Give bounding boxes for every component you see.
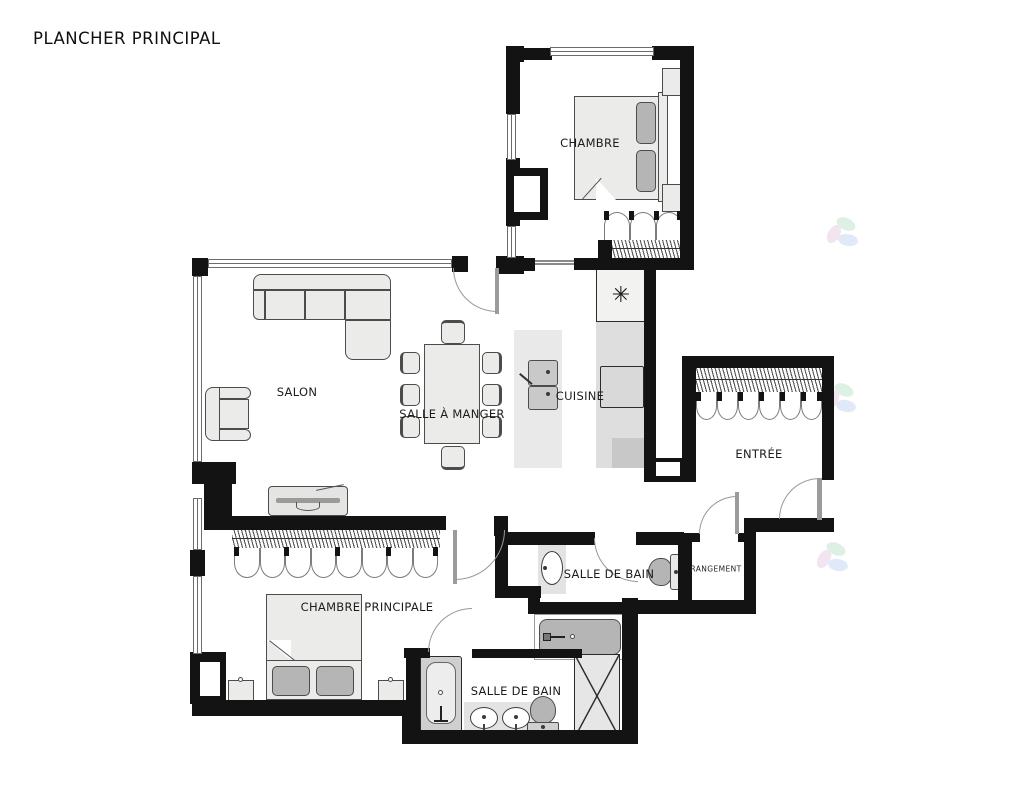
wall	[598, 240, 612, 260]
dishwasher-door	[528, 386, 558, 410]
wall-niche	[200, 662, 220, 696]
dining-chair	[400, 352, 420, 374]
wall	[644, 268, 656, 460]
dishwasher-knob	[546, 370, 550, 374]
door-post	[696, 392, 701, 401]
door-post	[335, 547, 340, 556]
watermark-petal	[835, 398, 857, 413]
stove	[600, 366, 644, 408]
nightstand	[378, 680, 404, 702]
window	[193, 498, 202, 550]
door-post	[386, 547, 391, 556]
wall	[738, 533, 756, 542]
closet-rod	[612, 248, 680, 249]
wall	[636, 532, 684, 545]
bed-pillow	[636, 102, 656, 144]
bed-pillow	[636, 150, 656, 192]
bifold-arc	[311, 548, 337, 578]
toilet-bowl	[530, 696, 556, 724]
shower-drain	[438, 690, 443, 695]
window	[550, 47, 654, 56]
watermark-petal	[837, 232, 859, 247]
armchair-arm	[219, 387, 251, 399]
wall	[684, 533, 700, 542]
door-post	[817, 392, 822, 401]
room-label-chambre: CHAMBRE	[560, 136, 620, 150]
wall	[506, 218, 520, 226]
room-label-salon: SALON	[277, 385, 318, 399]
bed-pillow-line	[267, 660, 361, 661]
room-label-chambre-principale: CHAMBRE PRINCIPALE	[301, 600, 434, 614]
door-post	[780, 392, 785, 401]
fridge-snowflake-icon: ✳	[612, 283, 630, 308]
wall	[192, 700, 406, 716]
armchair-arm	[219, 429, 251, 441]
wall	[506, 60, 520, 114]
closet-rod	[696, 379, 822, 380]
sink-faucet	[514, 715, 518, 719]
door-post	[738, 392, 743, 401]
bed-pillow	[272, 666, 310, 696]
room-label-rangement: RANGEMENT	[690, 565, 741, 574]
room-label-salle-a-manger: SALLE À MANGER	[399, 407, 504, 421]
window	[507, 226, 516, 258]
door-swing	[699, 496, 737, 534]
dining-chair	[441, 446, 465, 470]
dining-chair	[482, 384, 502, 406]
tv-stand-arc	[296, 502, 320, 511]
door-post	[717, 392, 722, 401]
room-label-salle-de-bain: SALLE DE BAIN	[564, 567, 655, 581]
nightstand	[662, 68, 682, 96]
bathtub-faucet-stem	[551, 636, 565, 638]
dining-table	[424, 344, 480, 444]
door-swing	[453, 268, 497, 312]
door-post	[234, 547, 239, 556]
fridge: ✳	[596, 268, 646, 322]
sofa-back	[253, 274, 391, 290]
door-post	[604, 211, 609, 220]
window	[193, 576, 202, 654]
room-label-salle-de-bain-2: SALLE DE BAIN	[471, 684, 562, 698]
door-post	[801, 392, 806, 401]
dining-chair	[400, 384, 420, 406]
wall	[744, 518, 756, 610]
dining-chair	[482, 352, 502, 374]
sofa-armrest	[253, 290, 265, 320]
wall	[190, 550, 205, 576]
dishwasher-knob	[546, 392, 550, 396]
door-post	[284, 547, 289, 556]
sofa-seat	[265, 290, 305, 320]
wall	[520, 48, 552, 60]
wall	[682, 356, 834, 368]
dining-chair	[441, 320, 465, 344]
watermark-logo	[824, 216, 864, 256]
entry-door-leaf	[817, 478, 822, 520]
closet-rod	[232, 538, 440, 539]
nightstand	[228, 680, 254, 702]
sink-faucet	[543, 566, 547, 570]
wall	[192, 462, 236, 484]
door-leaf	[453, 530, 457, 584]
door-swing	[428, 608, 472, 652]
door-post	[677, 211, 682, 220]
wall	[822, 356, 834, 480]
wall	[680, 46, 694, 270]
watermark-petal	[827, 557, 849, 572]
kitchen-counter-end	[612, 438, 644, 468]
wall	[406, 730, 622, 744]
door-leaf	[495, 268, 499, 314]
opening-line	[535, 263, 575, 265]
room-label-entree: ENTRÉE	[735, 447, 782, 461]
wall	[495, 532, 595, 545]
room-label-cuisine: CUISINE	[556, 389, 605, 403]
wall	[497, 258, 535, 271]
duct-shaft-inner	[514, 176, 540, 212]
window	[193, 276, 202, 462]
wall	[204, 484, 232, 518]
door-post	[654, 211, 659, 220]
dishwasher-door	[528, 360, 558, 386]
wall	[574, 258, 694, 270]
entry-door-swing	[779, 478, 820, 519]
page-title: PLANCHER PRINCIPAL	[33, 29, 221, 48]
sofa-chaise	[345, 320, 391, 360]
wall	[204, 516, 446, 530]
nightstand	[662, 184, 682, 212]
bifold-arc	[260, 548, 286, 578]
door-post	[433, 547, 438, 556]
door-leaf	[735, 492, 739, 534]
toilet-flush	[541, 725, 545, 729]
wall-notch	[656, 462, 680, 476]
wall	[682, 356, 696, 482]
sofa-seat	[305, 290, 345, 320]
bathtub-drain	[570, 634, 575, 639]
wall	[192, 258, 208, 276]
wall	[622, 598, 638, 744]
watermark-logo	[814, 541, 854, 581]
bed-pillow	[316, 666, 354, 696]
sink-faucet	[482, 715, 486, 719]
armchair-seat	[219, 399, 249, 429]
window	[507, 114, 516, 160]
bathtub-faucet	[543, 633, 551, 641]
window	[208, 259, 452, 268]
shower-stall-x	[574, 654, 620, 738]
floorplan-canvas: ✳	[0, 0, 1024, 790]
nightstand-knob	[388, 677, 393, 682]
wall	[744, 518, 834, 532]
wall	[636, 600, 756, 614]
shower-faucet-bar	[434, 720, 448, 722]
wall	[472, 649, 582, 658]
nightstand-knob	[238, 677, 243, 682]
sofa-corner-seat	[345, 290, 391, 320]
door-post	[629, 211, 634, 220]
closet-bifold-doors	[604, 212, 682, 240]
door-post	[759, 392, 764, 401]
bifold-arc	[362, 548, 388, 578]
wall	[530, 602, 624, 614]
